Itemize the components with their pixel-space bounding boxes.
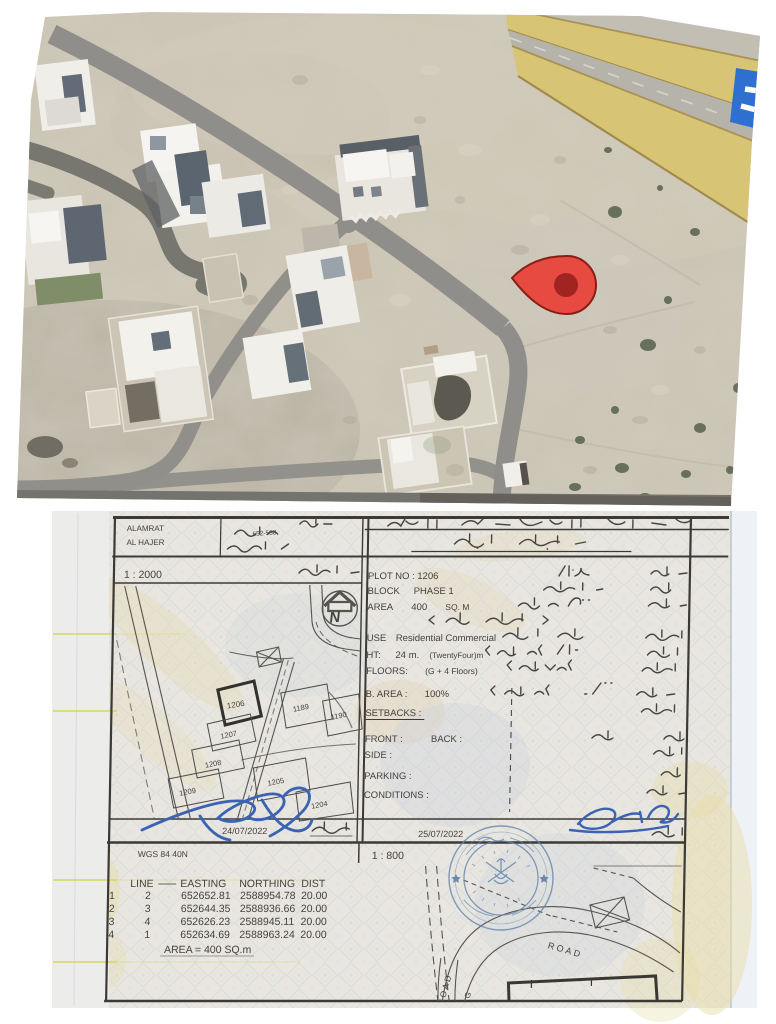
svg-text:652644.35: 652644.35 [181, 903, 231, 915]
svg-text:SETBACKS :: SETBACKS : [365, 708, 421, 719]
svg-text:LINE: LINE [130, 878, 154, 890]
svg-text:25/07/2022: 25/07/2022 [418, 829, 463, 839]
svg-text:652626.23: 652626.23 [180, 916, 230, 928]
svg-text:HT:: HT: [366, 650, 380, 661]
svg-text:NORTHING: NORTHING [239, 878, 295, 890]
svg-text:WGS 84 40N: WGS 84 40N [138, 849, 188, 859]
svg-text:2588936.66: 2588936.66 [240, 903, 296, 915]
svg-text:2588954.78: 2588954.78 [240, 890, 296, 902]
svg-text:B. AREA :: B. AREA : [366, 689, 408, 700]
svg-text:1: 1 [144, 929, 150, 941]
svg-text:ALAMRAT: ALAMRAT [127, 524, 164, 533]
svg-text:PHASE 1: PHASE 1 [414, 586, 454, 597]
svg-text:BACK :: BACK : [431, 734, 462, 745]
svg-text:3: 3 [108, 916, 114, 928]
svg-text:PLOT NO : 1206: PLOT NO : 1206 [368, 571, 439, 582]
svg-text:1: 1 [109, 890, 115, 902]
svg-text:20.00: 20.00 [301, 903, 328, 915]
svg-text:4: 4 [144, 916, 150, 928]
svg-text:Residential Commercial: Residential Commercial [396, 633, 497, 644]
svg-text:20.00: 20.00 [301, 890, 328, 902]
svg-text:DIST: DIST [301, 878, 326, 890]
svg-text:SQ. M: SQ. M [445, 602, 469, 612]
svg-text:100%: 100% [425, 689, 450, 700]
svg-text:652634.69: 652634.69 [180, 929, 230, 941]
svg-text:(TwentyFour)m: (TwentyFour)m [429, 651, 483, 660]
svg-text:USE: USE [367, 633, 387, 644]
svg-text:20.00: 20.00 [300, 916, 327, 928]
svg-text:AREA = 400 SQ.m: AREA = 400 SQ.m [164, 944, 252, 956]
svg-text:FRONT :: FRONT : [365, 734, 403, 745]
svg-text:24 m.: 24 m. [395, 650, 419, 661]
svg-text:1 : 800: 1 : 800 [372, 850, 404, 862]
svg-text:SIDE :: SIDE : [365, 750, 393, 761]
svg-text:PARKING :: PARKING : [364, 771, 412, 782]
svg-text:1 : 2000: 1 : 2000 [124, 569, 162, 581]
svg-text:3: 3 [145, 903, 151, 915]
svg-text:CONDITIONS :: CONDITIONS : [364, 790, 429, 801]
svg-text:AL HAJER: AL HAJER [126, 538, 164, 547]
svg-text:2588945.11: 2588945.11 [239, 916, 294, 928]
svg-text:652652.81: 652652.81 [181, 890, 231, 902]
svg-text:2: 2 [109, 903, 115, 915]
svg-text:FLOORS:: FLOORS: [366, 666, 408, 677]
svg-text:24/07/2022: 24/07/2022 [222, 826, 267, 836]
svg-text:(G + 4 Floors): (G + 4 Floors) [425, 666, 478, 676]
svg-text:20.00: 20.00 [300, 929, 327, 941]
svg-text:2: 2 [145, 890, 151, 902]
svg-text:EASTING: EASTING [180, 878, 226, 890]
svg-text:4: 4 [108, 929, 114, 941]
svg-text:BLOCK: BLOCK [368, 586, 401, 597]
svg-text:2588963.24: 2588963.24 [239, 929, 295, 941]
svg-text:400: 400 [411, 602, 427, 613]
svg-text:AREA: AREA [367, 602, 394, 613]
